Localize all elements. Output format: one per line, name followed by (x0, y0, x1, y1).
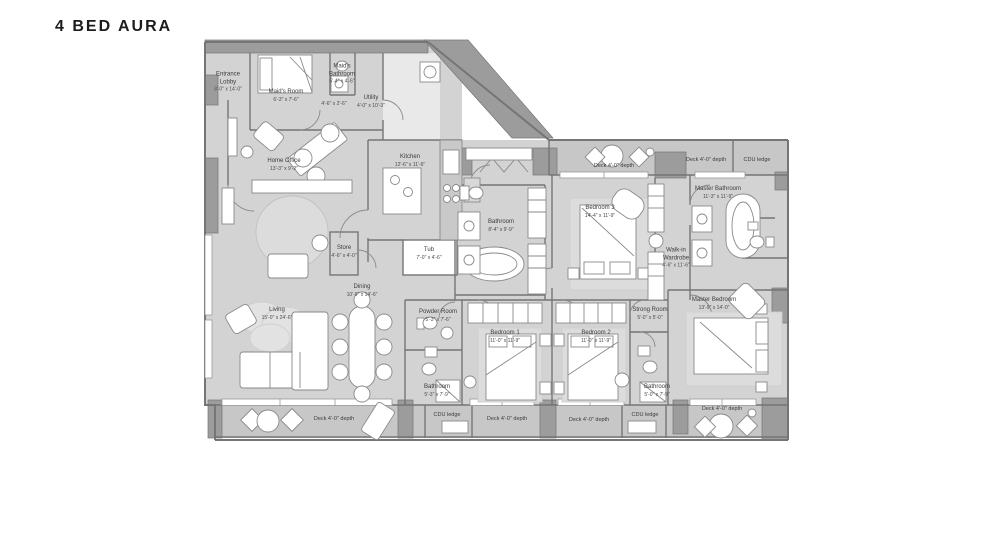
label-home-office: Home Office13'-3" x 9'-2" (267, 158, 300, 172)
label-master-bathroom: Master Bathroom11'-3" x 11'-9" (695, 186, 741, 200)
floor-plan-drawing (0, 0, 990, 550)
label-strong-room: Strong Room5'-0" x 5'-0" (632, 307, 667, 321)
washer-icon (420, 62, 440, 82)
label-bedroom3: Bedroom 314'-4" x 11'-9" (585, 205, 615, 219)
walkin-wardrobe-cabinets (648, 184, 664, 300)
label-powder-room: Powder Room5'-3" x 7'-6" (419, 309, 457, 323)
maid-bed (258, 55, 312, 93)
lobby-console (222, 188, 234, 224)
label-dining: Dining10'-9" x 14'-6" (347, 284, 378, 298)
label-bathroom1: Bathroom5'-3" x 7'-9" (424, 384, 450, 398)
label-bathroom-main: Bathroom8'-4" x 9'-9" (488, 219, 514, 233)
floor-plan-page: 4 BED AURA (0, 0, 990, 550)
cdu-unit-2 (628, 421, 656, 433)
label-deck-master: Deck 4'-0" depth (702, 406, 742, 412)
foyer-table (312, 235, 328, 251)
label-bedroom1: Bedroom 111'-0" x 11'-9" (490, 330, 520, 344)
label-cdu-1: CDU ledge (434, 412, 461, 418)
label-deck-bed3: Deck 4'-0" depth (594, 163, 634, 169)
label-tub: Tub7'-0" x 4'-6" (416, 247, 441, 261)
label-master-bedroom: Master Bedroom13'-9" x 14'-0" (692, 297, 736, 311)
office-credenza (252, 180, 352, 193)
master-bed (686, 304, 782, 392)
label-bathroom2: Bathroom5'-0" x 7'-9" (644, 384, 670, 398)
label-closet-dim: 4'-6" x 2'-6" (321, 101, 346, 107)
label-cdu-2: CDU ledge (632, 412, 659, 418)
office-bookshelf (228, 118, 237, 156)
label-walkin-wardrobe: Walk-in Wardrobe4'-6" x 11'-6" (658, 247, 694, 268)
label-cdu-top: CDU ledge (744, 157, 771, 163)
label-deck-living: Deck 4'-0" depth (314, 416, 354, 422)
cdu-unit-1 (442, 421, 468, 433)
label-utility: Utility4'-0" x 10'-3" (357, 95, 385, 109)
label-entrance-lobby: Entrance Lobby3'-0" x 14'-0" (207, 71, 249, 92)
label-living: Living15'-0" x 24'-6" (262, 307, 293, 321)
label-maids-room: Maid's Room6'-3" x 7'-6" (269, 89, 304, 103)
label-maids-bathroom: Maid's Bathroom5'-4" x 4'-6" (325, 63, 359, 84)
foyer-bench (268, 254, 308, 278)
label-deck-bed1: Deck 4'-0" depth (487, 416, 527, 422)
label-store: Store4'-6" x 4'-0" (331, 245, 356, 259)
bedroom2-furniture (554, 303, 629, 402)
label-deck-bed2: Deck 4'-0" depth (569, 417, 609, 423)
label-bedroom2: Bedroom 211'-0" x 11'-9" (581, 330, 611, 344)
label-deck-masterbath: Deck 4'-0" depth (686, 157, 726, 163)
label-kitchen: Kitchen12'-6" x 11'-6" (395, 154, 425, 168)
